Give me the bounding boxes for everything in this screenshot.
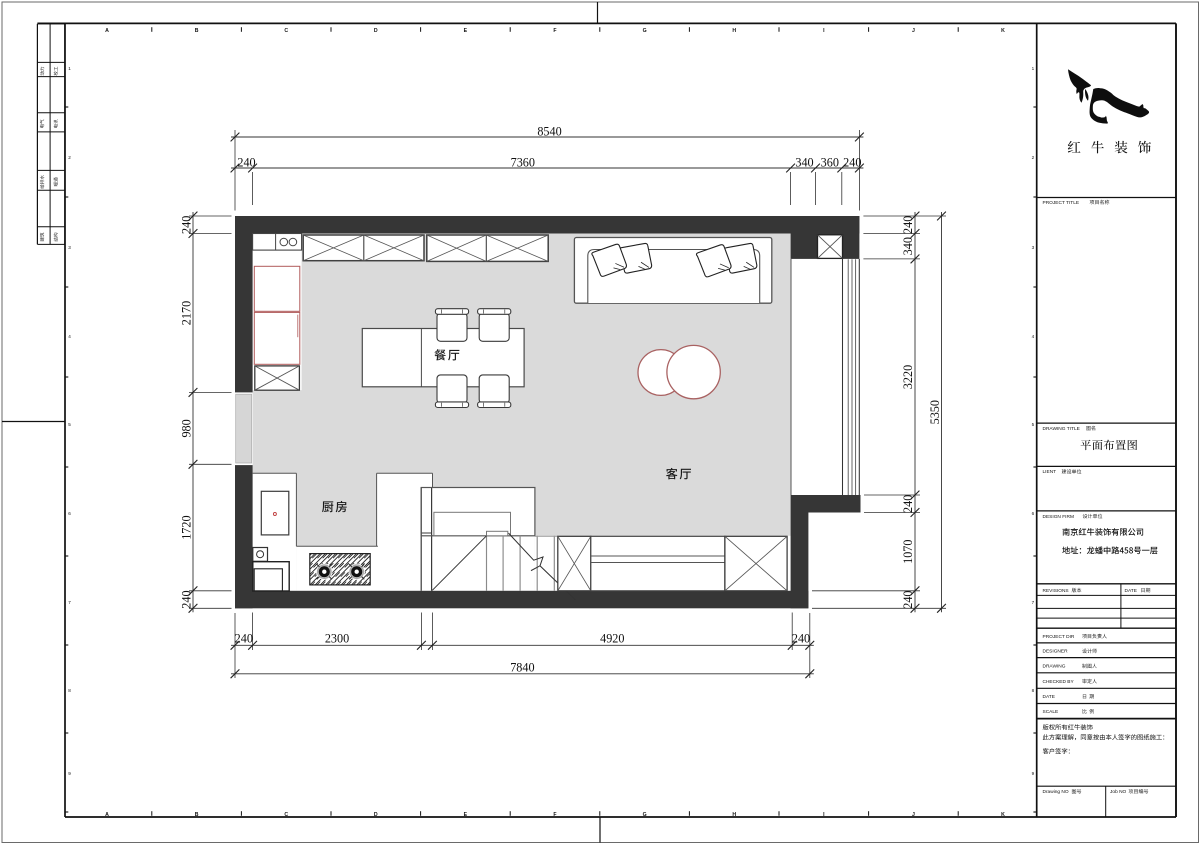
svg-text:7: 7 bbox=[68, 600, 71, 605]
svg-text:D: D bbox=[374, 28, 378, 34]
svg-text:F: F bbox=[553, 28, 556, 34]
svg-text:3220: 3220 bbox=[901, 365, 915, 389]
svg-text:5: 5 bbox=[68, 422, 71, 427]
svg-text:G: G bbox=[643, 812, 647, 818]
svg-text:PROJECT DIR: PROJECT DIR bbox=[1043, 634, 1075, 640]
svg-text:340: 340 bbox=[901, 237, 915, 255]
svg-text:D: D bbox=[374, 812, 378, 818]
svg-text:3: 3 bbox=[1032, 245, 1035, 250]
svg-text:2: 2 bbox=[68, 155, 71, 160]
svg-text:8: 8 bbox=[1032, 688, 1035, 693]
svg-text:240: 240 bbox=[901, 495, 915, 513]
svg-text:PROJECT TITLE: PROJECT TITLE bbox=[1043, 200, 1080, 206]
svg-text:240: 240 bbox=[901, 216, 915, 234]
svg-text:6: 6 bbox=[1032, 511, 1035, 516]
svg-text:B: B bbox=[195, 28, 199, 34]
svg-text:LIENT: LIENT bbox=[1043, 469, 1057, 475]
svg-text:2170: 2170 bbox=[180, 301, 194, 325]
svg-text:H: H bbox=[732, 28, 736, 34]
svg-text:240: 240 bbox=[235, 632, 253, 646]
svg-text:6: 6 bbox=[68, 511, 71, 516]
svg-text:340: 340 bbox=[795, 155, 813, 169]
svg-text:980: 980 bbox=[180, 419, 194, 437]
svg-text:REVISIONS: REVISIONS bbox=[1043, 588, 1069, 594]
svg-text:9: 9 bbox=[1032, 771, 1035, 776]
svg-text:5350: 5350 bbox=[928, 400, 942, 424]
svg-text:K: K bbox=[1001, 28, 1005, 34]
svg-text:DESIGN FIRM: DESIGN FIRM bbox=[1043, 514, 1074, 520]
svg-text:K: K bbox=[1001, 812, 1005, 818]
svg-text:SCALE: SCALE bbox=[1043, 709, 1059, 715]
svg-text:4920: 4920 bbox=[600, 632, 624, 646]
svg-text:E: E bbox=[464, 812, 468, 818]
svg-text:1: 1 bbox=[68, 66, 71, 71]
svg-text:A: A bbox=[105, 28, 109, 34]
svg-text:8540: 8540 bbox=[537, 124, 561, 138]
svg-text:1: 1 bbox=[1032, 66, 1035, 71]
svg-text:DESIGNER: DESIGNER bbox=[1043, 649, 1069, 655]
svg-text:1720: 1720 bbox=[180, 515, 194, 539]
svg-text:DATE: DATE bbox=[1043, 694, 1055, 700]
svg-text:3: 3 bbox=[68, 245, 71, 250]
svg-text:A: A bbox=[105, 812, 109, 818]
svg-text:1070: 1070 bbox=[901, 540, 915, 564]
svg-text:2300: 2300 bbox=[325, 632, 349, 646]
svg-text:240: 240 bbox=[180, 216, 194, 234]
svg-text:DRAWING: DRAWING bbox=[1043, 664, 1066, 670]
svg-text:G: G bbox=[643, 28, 647, 34]
svg-text:240: 240 bbox=[237, 155, 255, 169]
svg-text:CHECKED BY: CHECKED BY bbox=[1043, 679, 1075, 685]
svg-text:E: E bbox=[464, 28, 468, 34]
svg-text:240: 240 bbox=[901, 590, 915, 608]
svg-text:7: 7 bbox=[1032, 600, 1035, 605]
svg-text:H: H bbox=[732, 812, 736, 818]
svg-text:DRAWING TITLE: DRAWING TITLE bbox=[1043, 426, 1080, 432]
svg-text:C: C bbox=[284, 812, 288, 818]
svg-text:7360: 7360 bbox=[511, 155, 535, 169]
svg-text:5: 5 bbox=[1032, 422, 1035, 427]
svg-text:F: F bbox=[553, 812, 556, 818]
svg-text:J: J bbox=[912, 812, 915, 818]
svg-text:240: 240 bbox=[792, 632, 810, 646]
svg-text:240: 240 bbox=[843, 155, 861, 169]
svg-text:Drawing NO: Drawing NO bbox=[1043, 789, 1069, 795]
svg-text:240: 240 bbox=[180, 590, 194, 608]
svg-text:8: 8 bbox=[68, 688, 71, 693]
svg-text:4: 4 bbox=[68, 334, 71, 339]
svg-text:4: 4 bbox=[1032, 334, 1035, 339]
svg-text:2: 2 bbox=[1032, 155, 1035, 160]
svg-text:9: 9 bbox=[68, 771, 71, 776]
svg-text:J: J bbox=[912, 28, 915, 34]
svg-text:7840: 7840 bbox=[510, 661, 534, 675]
svg-text:Job NO: Job NO bbox=[1110, 789, 1127, 795]
svg-text:B: B bbox=[195, 812, 199, 818]
svg-text:360: 360 bbox=[821, 155, 839, 169]
svg-text:DATE: DATE bbox=[1125, 588, 1137, 594]
svg-text:C: C bbox=[284, 28, 288, 34]
